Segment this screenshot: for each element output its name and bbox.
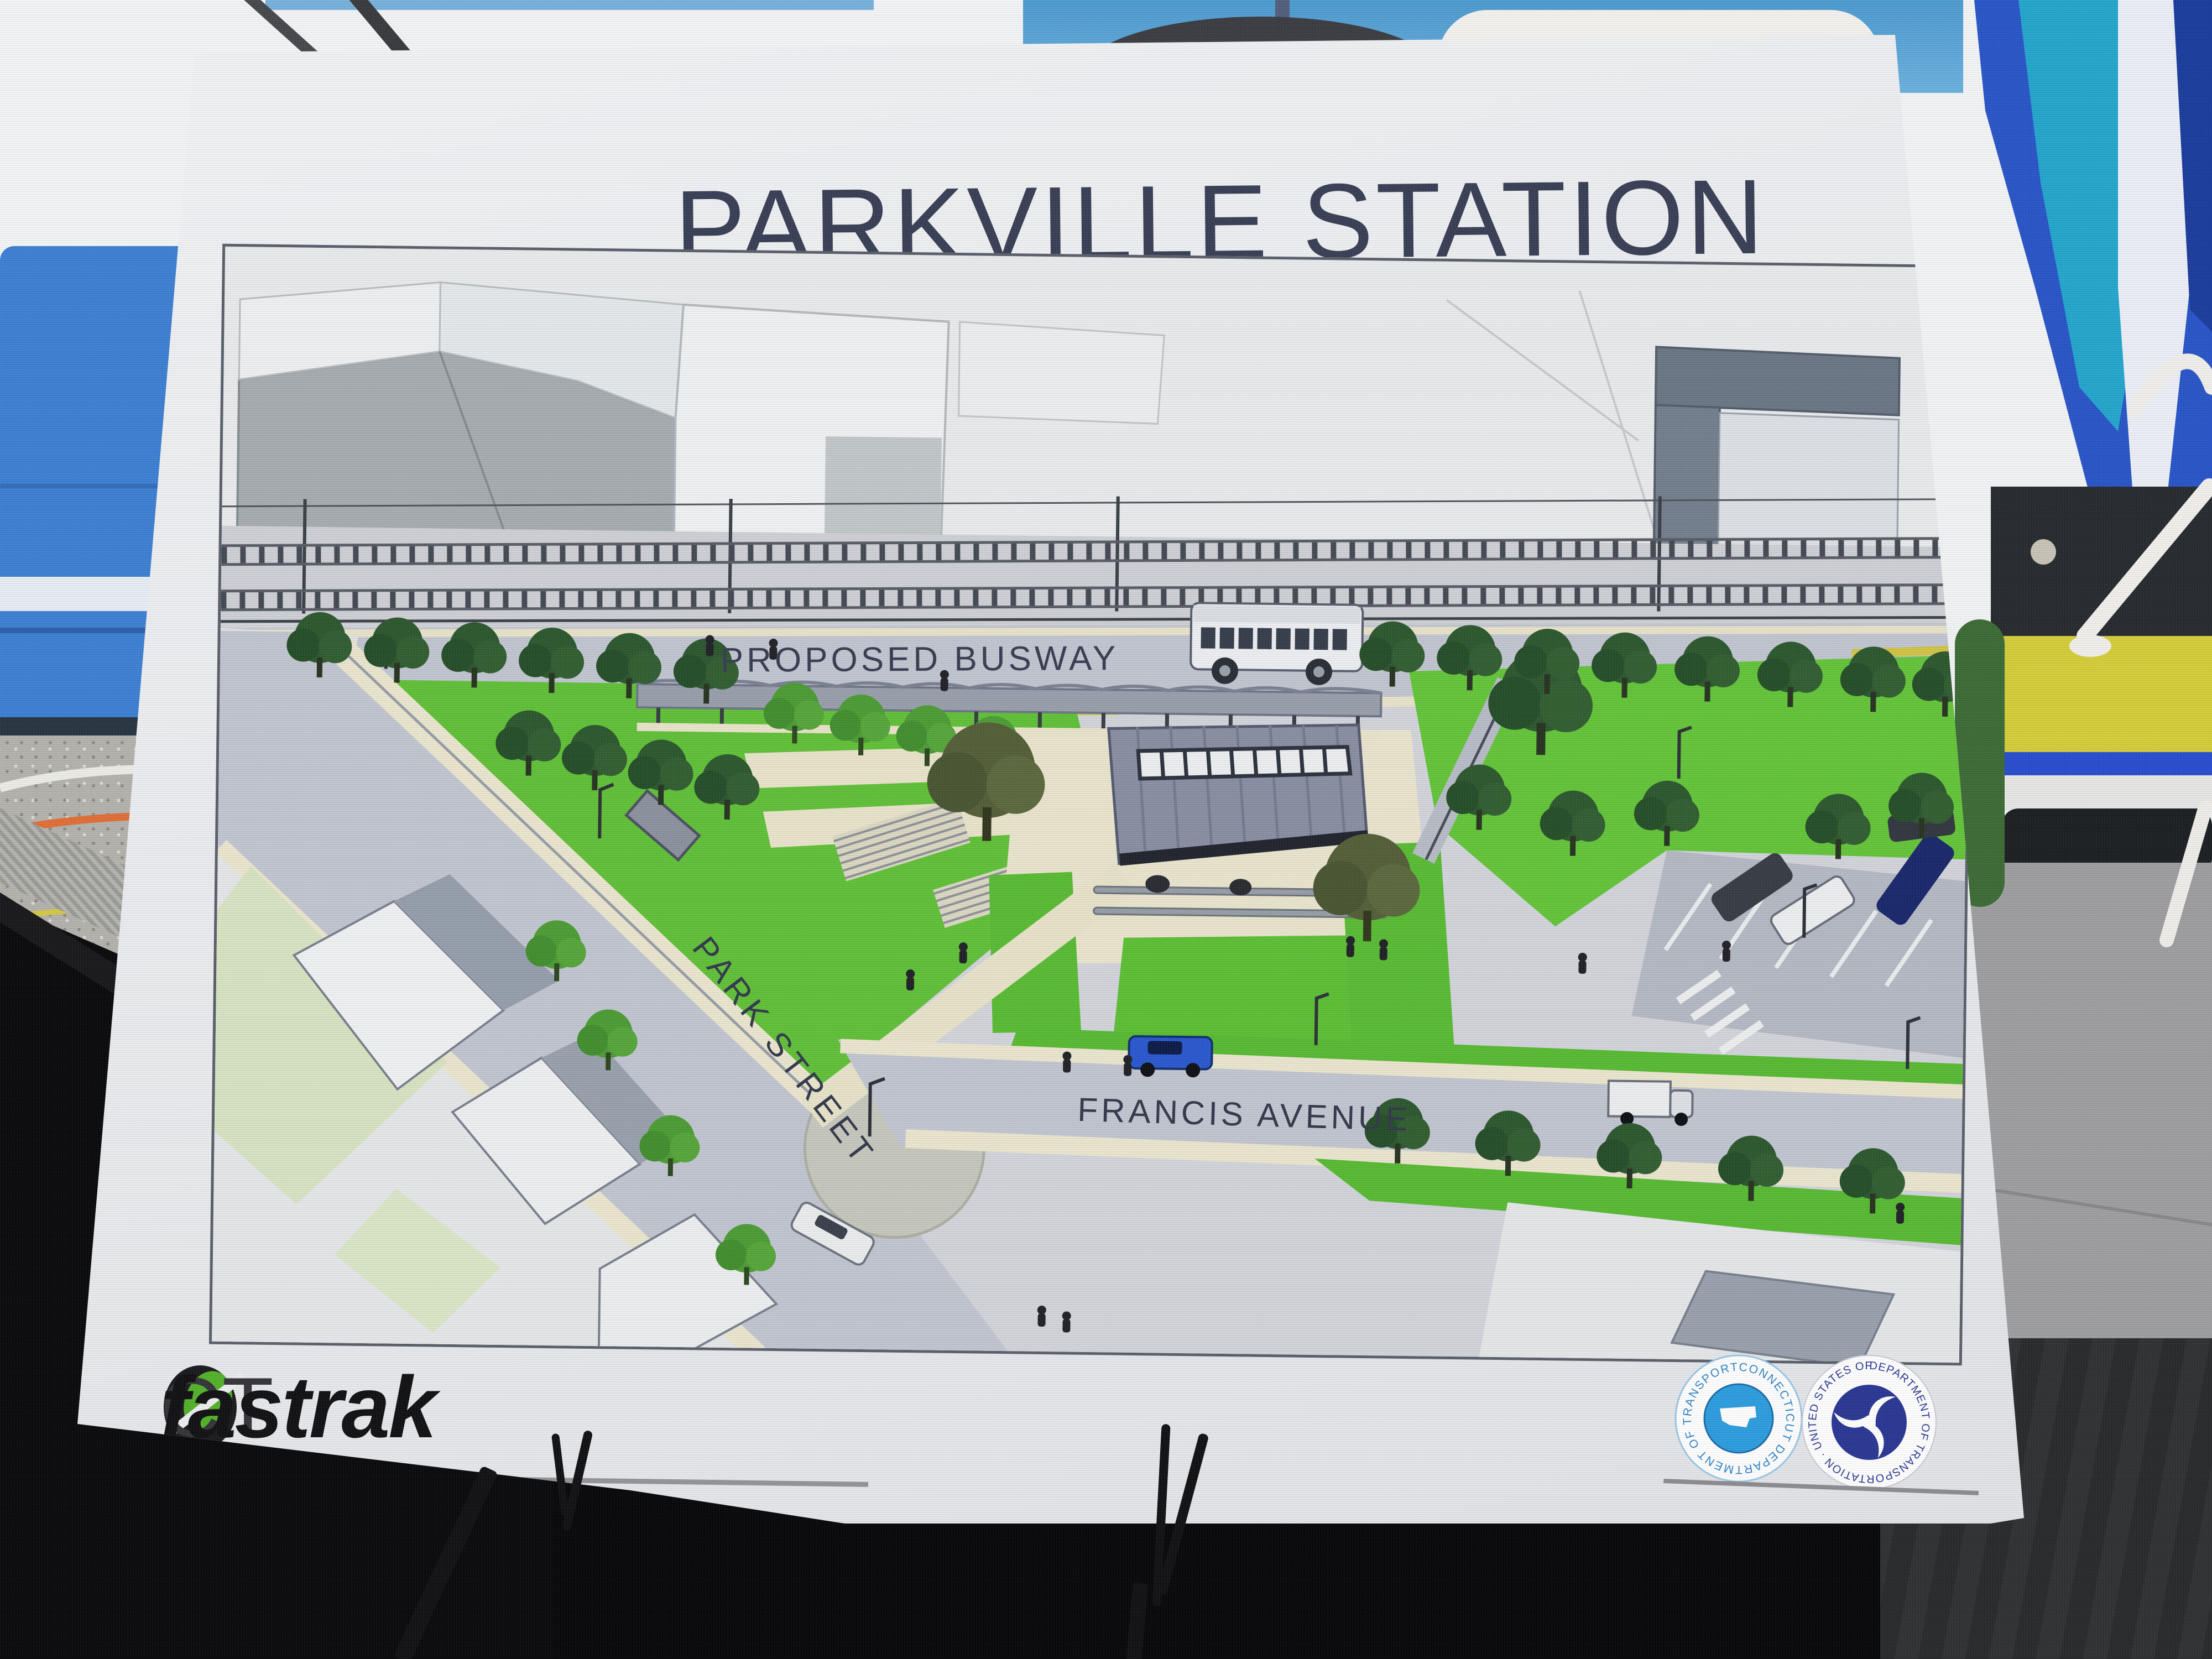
site-plan-panel: PROPOSED BUSWAY PARK STREET FRANCIS AVEN…	[209, 244, 1975, 1366]
event-photo-scene: PARKVILLE STATION	[0, 0, 2212, 1659]
chair-front-leg	[2085, 487, 2209, 636]
chair-foot	[2069, 635, 2111, 657]
chair-leg-arc	[2135, 361, 2212, 409]
ctdot-logo: CONNECTICUT DEPARTMENT OF TRANSPORTATION	[1673, 1353, 1804, 1484]
chair-rear-leg	[2167, 807, 2205, 940]
label-proposed-busway: PROPOSED BUSWAY	[721, 639, 1119, 680]
site-plan-drawing: PROPOSED BUSWAY PARK STREET FRANCIS AVEN…	[212, 247, 1975, 1366]
presentation-board: PARKVILLE STATION	[77, 30, 2024, 1524]
clerestory-windows	[1138, 744, 1351, 781]
white-chair-legs	[2046, 310, 2212, 973]
usdot-logo: DEPARTMENT OF TRANSPORTATION · UNITED ST…	[1800, 1353, 1938, 1491]
